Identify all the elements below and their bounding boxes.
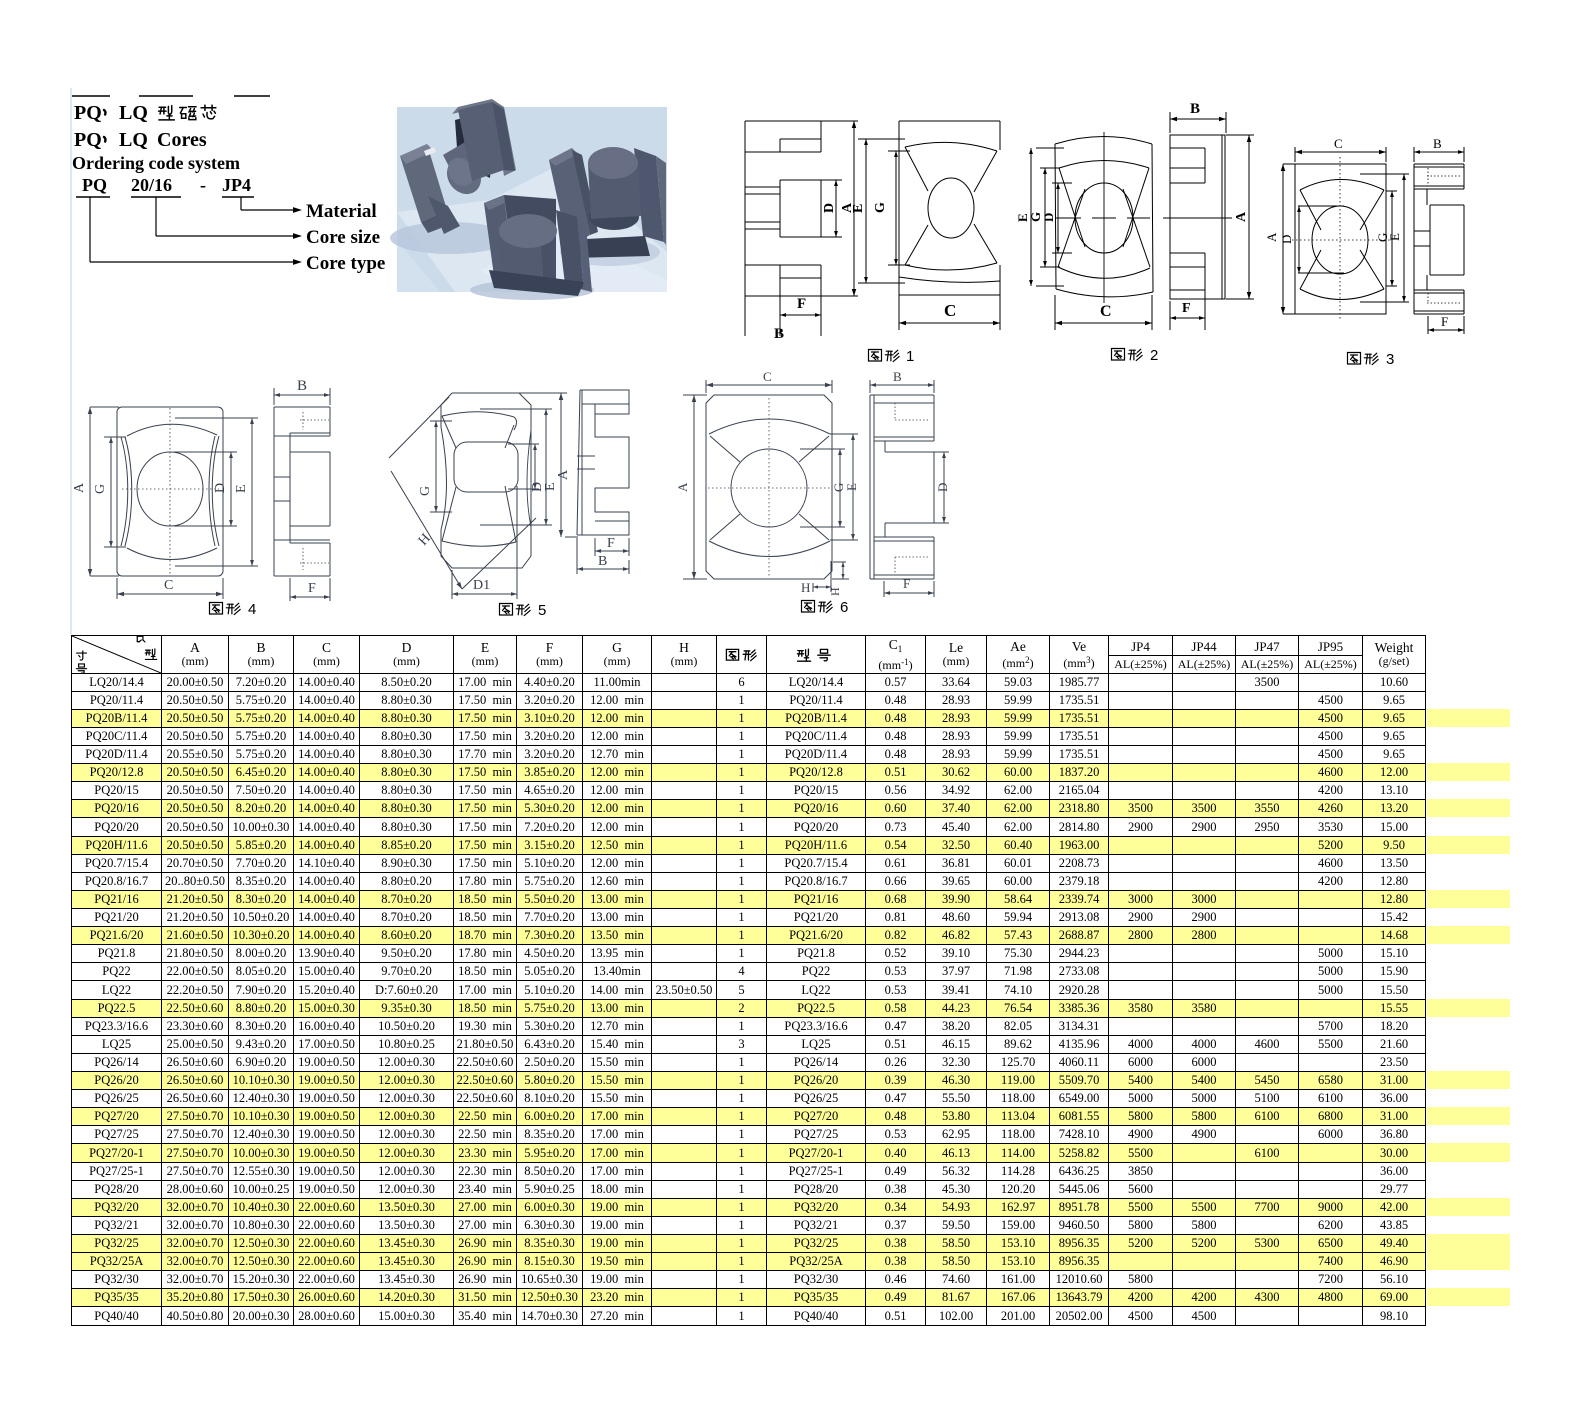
svg-text:B: B [1190,101,1200,117]
svg-text:C: C [944,301,956,320]
svg-text:H: H [828,587,842,596]
svg-text:C: C [164,578,173,593]
svg-text:5: 5 [538,602,546,619]
svg-text:B: B [297,378,307,394]
svg-text:A: A [1264,232,1279,242]
svg-text:4: 4 [248,601,256,618]
svg-text:1: 1 [906,348,914,365]
svg-text:G: G [873,202,888,213]
svg-text:A: A [72,482,87,493]
svg-text:C: C [763,369,772,384]
svg-text:G: G [93,484,108,494]
svg-text:A: A [556,469,571,480]
svg-text:E: E [1387,233,1402,241]
svg-text:PQ: PQ [82,175,107,195]
svg-text:-: - [200,175,206,195]
svg-text:6: 6 [840,599,848,616]
svg-text:20/16: 20/16 [131,175,172,195]
svg-text:Core size: Core size [306,227,380,248]
svg-text:B: B [1433,136,1442,151]
svg-text:D: D [1041,213,1056,222]
svg-text:Cores: Cores [157,129,207,151]
svg-text:E: E [844,483,859,491]
svg-text:D: D [213,483,228,493]
svg-text:Ordering code system: Ordering code system [72,153,240,173]
svg-text:C: C [1100,303,1112,320]
svg-text:C: C [1334,136,1343,151]
svg-text:A: A [675,482,690,492]
svg-text:F: F [1441,314,1448,329]
svg-text:PQ: PQ [74,102,102,124]
svg-text:LQ: LQ [119,102,148,124]
svg-text:B: B [893,369,902,384]
svg-text:G: G [418,486,433,496]
svg-text:H: H [416,531,434,549]
svg-text:E: E [543,482,558,491]
svg-text:B: B [774,326,784,342]
svg-text:H: H [801,580,810,595]
svg-text:LQ: LQ [119,129,148,151]
svg-text:F: F [903,576,910,591]
svg-text:F: F [797,296,806,312]
svg-text:2: 2 [1150,347,1158,364]
svg-text:F: F [607,536,615,551]
svg-text:E: E [851,204,866,213]
svg-text:F: F [1182,301,1191,316]
svg-text:Core type: Core type [306,253,385,274]
svg-text:A: A [1234,211,1249,222]
svg-text:D: D [822,203,837,213]
svg-text:JP4: JP4 [222,175,251,195]
svg-text:D: D [1279,235,1294,244]
svg-text:F: F [308,581,316,596]
svg-text:3: 3 [1386,351,1394,368]
svg-text:Material: Material [306,201,377,222]
svg-text:PQ: PQ [74,129,102,151]
svg-text:E: E [234,484,249,493]
svg-text:B: B [598,554,607,569]
svg-text:D1: D1 [473,578,490,593]
svg-text:D: D [935,483,950,492]
